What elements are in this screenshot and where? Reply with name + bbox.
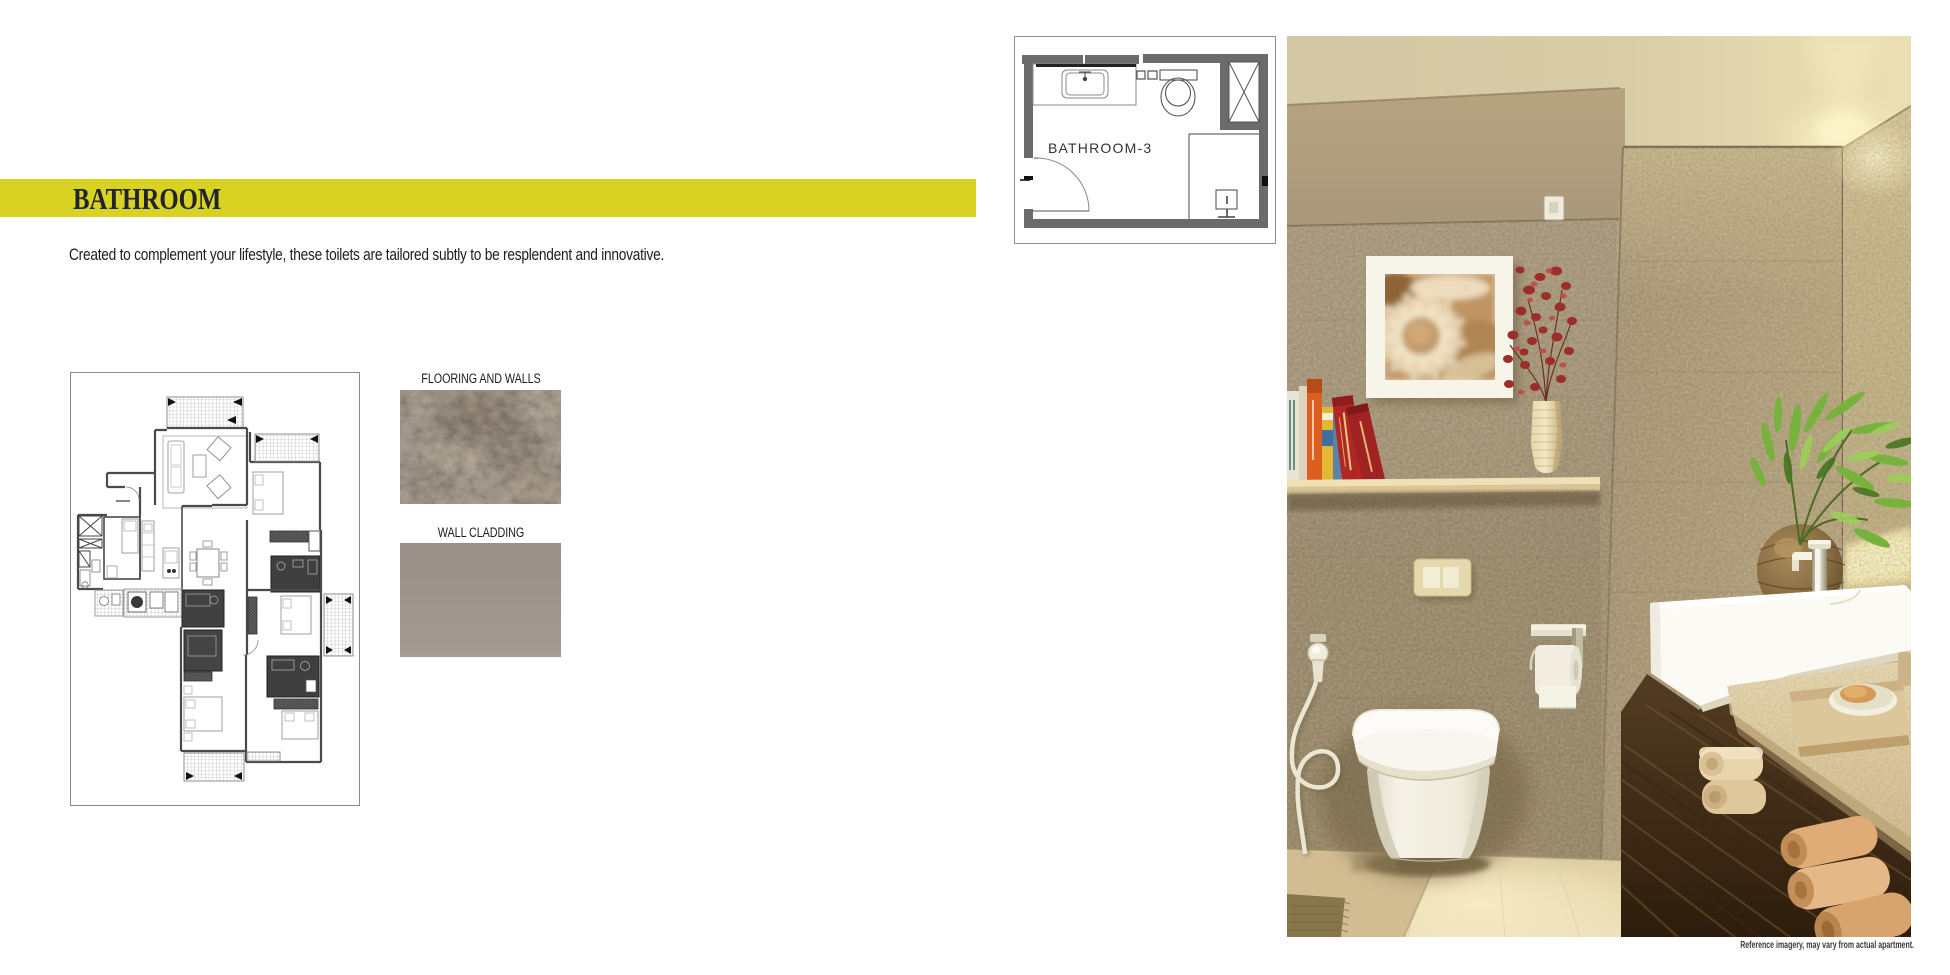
svg-text:BATHROOM-3: BATHROOM-3 <box>1048 140 1152 156</box>
